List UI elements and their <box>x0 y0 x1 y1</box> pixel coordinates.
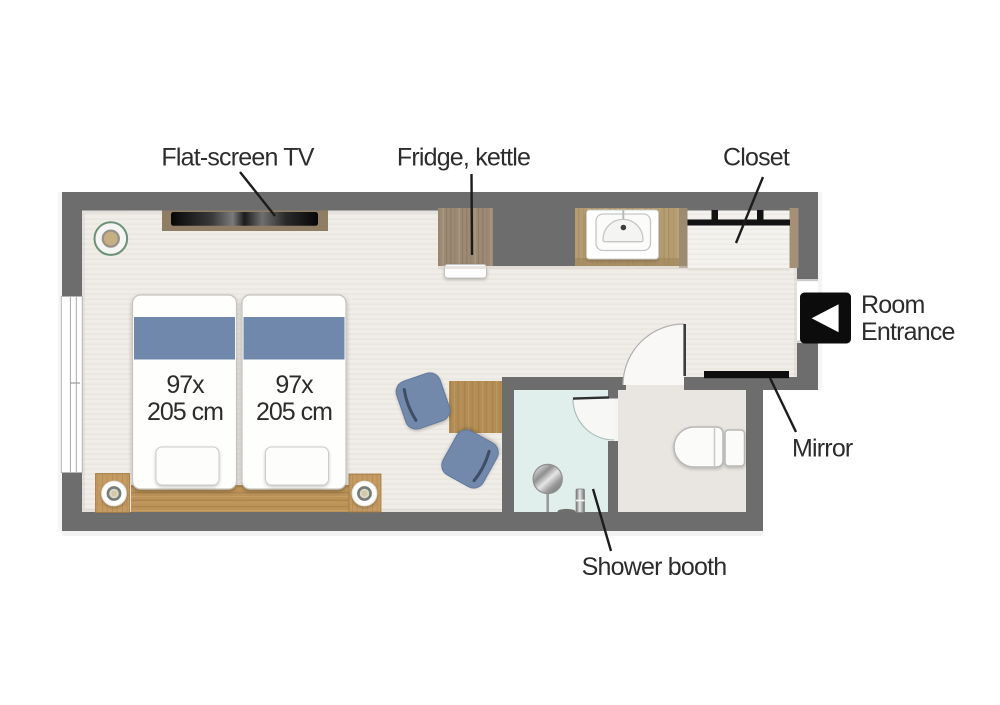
svg-text:Entrance: Entrance <box>861 318 955 346</box>
svg-text:Flat-screen TV: Flat-screen TV <box>161 144 314 172</box>
svg-text:97x: 97x <box>275 371 314 399</box>
svg-text:Mirror: Mirror <box>792 435 853 463</box>
svg-text:205 cm: 205 cm <box>256 398 332 426</box>
svg-text:Shower booth: Shower booth <box>582 553 727 581</box>
svg-text:Fridge, kettle: Fridge, kettle <box>397 144 530 172</box>
svg-text:205 cm: 205 cm <box>147 398 223 426</box>
svg-text:97x: 97x <box>166 371 205 399</box>
svg-text:Closet: Closet <box>723 144 790 172</box>
svg-text:Room: Room <box>861 291 925 319</box>
